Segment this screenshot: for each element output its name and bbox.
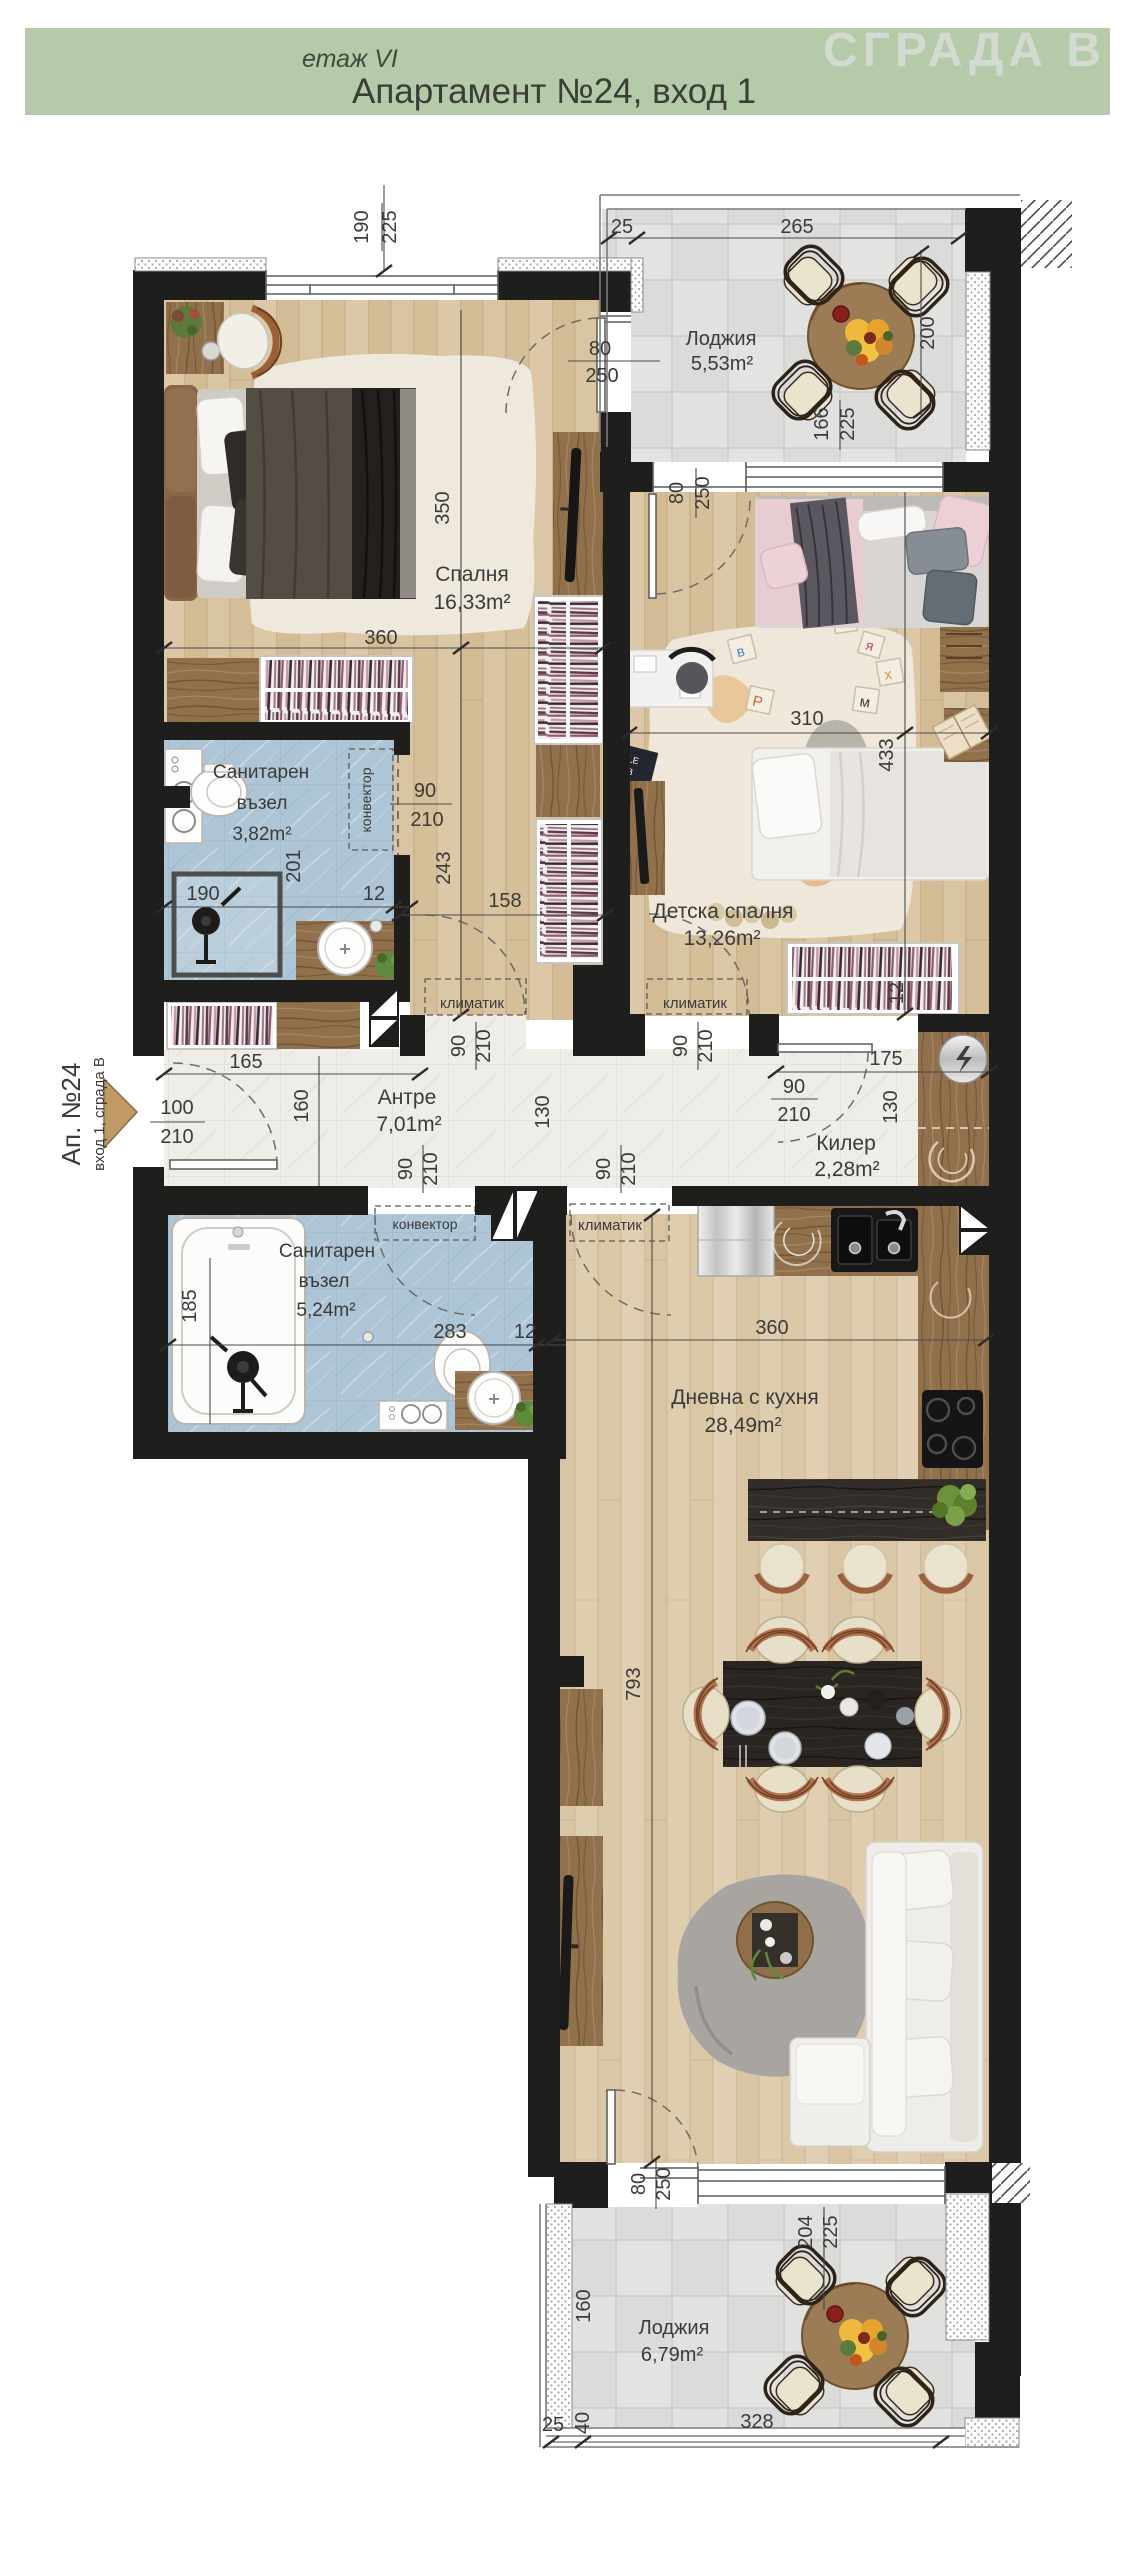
svg-text:Лоджия: Лоджия (686, 328, 757, 350)
svg-text:вход 1, сграда В: вход 1, сграда В (91, 1057, 108, 1171)
svg-text:210: 210 (473, 1029, 495, 1062)
svg-text:225: 225 (379, 210, 401, 243)
svg-text:Антре: Антре (378, 1086, 437, 1109)
svg-text:Санитарен: Санитарен (213, 762, 309, 783)
svg-text:204: 204 (795, 2215, 817, 2248)
svg-text:климатик: климатик (578, 1217, 642, 1234)
svg-text:210: 210 (160, 1126, 193, 1148)
svg-text:360: 360 (364, 627, 397, 649)
svg-text:210: 210 (618, 1152, 640, 1185)
svg-text:16,33m²: 16,33m² (433, 591, 510, 614)
svg-text:възел: възел (299, 1271, 350, 1292)
svg-text:433: 433 (876, 738, 898, 771)
svg-text:25: 25 (542, 2414, 564, 2436)
svg-text:190: 190 (186, 883, 219, 905)
svg-text:130: 130 (532, 1095, 554, 1128)
svg-text:160: 160 (291, 1089, 313, 1122)
svg-text:етаж VI: етаж VI (302, 45, 398, 73)
svg-text:90: 90 (414, 780, 436, 802)
svg-text:Детска спалня: Детска спалня (652, 900, 793, 923)
svg-text:350: 350 (432, 491, 454, 524)
svg-text:възел: възел (237, 793, 288, 814)
svg-text:166: 166 (811, 407, 833, 440)
svg-text:Санитарен: Санитарен (279, 1241, 375, 1262)
svg-text:328: 328 (740, 2411, 773, 2433)
svg-text:283: 283 (433, 1321, 466, 1343)
svg-text:Спалня: Спалня (435, 563, 508, 586)
svg-text:243: 243 (433, 851, 455, 884)
svg-text:Ап. №24: Ап. №24 (56, 1063, 86, 1166)
svg-text:климатик: климатик (440, 995, 504, 1012)
svg-text:12: 12 (363, 883, 385, 905)
svg-text:130: 130 (880, 1090, 902, 1123)
svg-text:210: 210 (695, 1029, 717, 1062)
svg-text:250: 250 (653, 2167, 675, 2200)
svg-text:360: 360 (755, 1317, 788, 1339)
svg-text:климатик: климатик (663, 995, 727, 1012)
svg-text:25: 25 (611, 216, 633, 238)
svg-text:90: 90 (395, 1158, 417, 1180)
svg-text:Килер: Килер (816, 1132, 876, 1155)
svg-text:80: 80 (666, 482, 688, 504)
svg-text:5,24m²: 5,24m² (296, 1300, 355, 1321)
svg-text:185: 185 (179, 1289, 201, 1322)
svg-text:100: 100 (160, 1097, 193, 1119)
svg-text:158: 158 (488, 890, 521, 912)
svg-text:160: 160 (573, 2289, 595, 2322)
svg-text:конвектор: конвектор (393, 1216, 458, 1232)
svg-text:13,26m²: 13,26m² (683, 927, 760, 950)
svg-text:конвектор: конвектор (358, 767, 374, 832)
svg-text:3,82m²: 3,82m² (232, 824, 291, 845)
svg-text:Дневна с кухня: Дневна с кухня (671, 1386, 819, 1409)
svg-text:190: 190 (351, 210, 373, 243)
svg-text:80: 80 (589, 338, 611, 360)
svg-text:210: 210 (410, 809, 443, 831)
svg-text:265: 265 (780, 216, 813, 238)
svg-text:2,28m²: 2,28m² (814, 1158, 879, 1181)
svg-text:210: 210 (420, 1152, 442, 1185)
svg-text:СГРАДА В: СГРАДА В (823, 24, 1106, 77)
svg-text:201: 201 (283, 849, 305, 882)
svg-text:793: 793 (623, 1667, 645, 1700)
svg-text:90: 90 (448, 1035, 470, 1057)
svg-text:200: 200 (917, 316, 939, 349)
svg-text:90: 90 (670, 1035, 692, 1057)
svg-text:90: 90 (783, 1076, 805, 1098)
svg-text:12: 12 (886, 982, 908, 1004)
svg-text:90: 90 (593, 1158, 615, 1180)
svg-text:5,53m²: 5,53m² (691, 353, 754, 375)
svg-text:225: 225 (820, 2215, 842, 2248)
svg-text:165: 165 (229, 1051, 262, 1073)
svg-text:250: 250 (692, 476, 714, 509)
svg-text:250: 250 (585, 365, 618, 387)
svg-text:Апартамент №24, вход 1: Апартамент №24, вход 1 (352, 72, 756, 111)
svg-text:Лоджия: Лоджия (639, 2317, 710, 2339)
svg-text:225: 225 (837, 407, 859, 440)
svg-text:28,49m²: 28,49m² (704, 1414, 781, 1437)
svg-text:210: 210 (777, 1104, 810, 1126)
svg-text:7,01m²: 7,01m² (376, 1113, 441, 1136)
svg-text:310: 310 (790, 708, 823, 730)
svg-text:12: 12 (514, 1321, 536, 1343)
svg-text:175: 175 (869, 1048, 902, 1070)
svg-text:40: 40 (572, 2412, 594, 2434)
svg-text:80: 80 (628, 2173, 650, 2195)
svg-text:6,79m²: 6,79m² (641, 2344, 704, 2366)
